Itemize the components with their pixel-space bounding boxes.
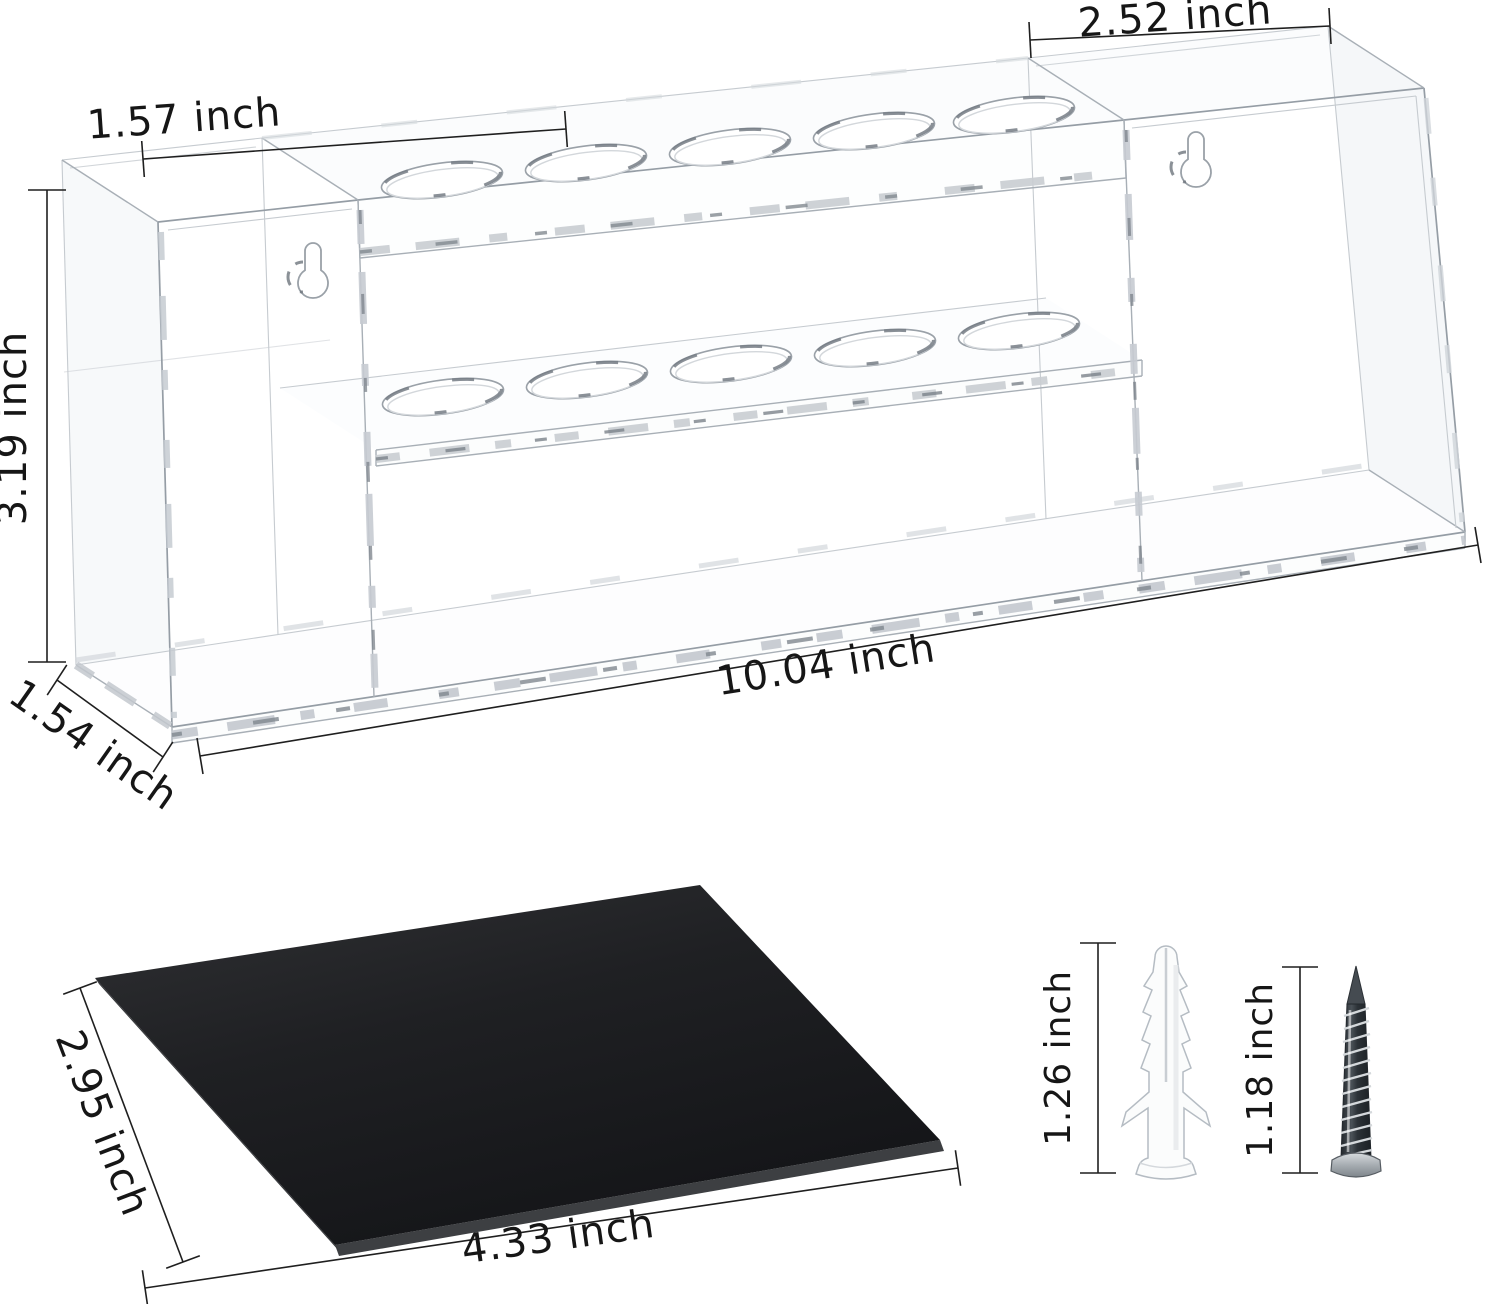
dim-label-anchor-length: 1.26 inch — [1038, 970, 1079, 1146]
black-mat — [95, 885, 940, 1245]
dim-label-mat-depth: 2.95 inch — [46, 1024, 159, 1222]
product-dimension-diagram: 1.57 inch 2.52 inch 3.19 inch 1.54 inch … — [0, 0, 1500, 1304]
wall-anchor — [1122, 946, 1210, 1179]
keyhole-slot-right — [1181, 132, 1211, 187]
dim-label-left-width: 1.57 inch — [85, 89, 282, 148]
mounting-screw — [1331, 966, 1381, 1177]
hardware-dimension-lines — [1080, 943, 1318, 1173]
dim-label-height: 3.19 inch — [0, 331, 36, 526]
diagram-canvas: 1.57 inch 2.52 inch 3.19 inch 1.54 inch … — [0, 0, 1500, 1304]
mounting-hardware-diagram: 1.26 inch 1.18 inch — [1038, 943, 1381, 1179]
keyhole-slot-left — [298, 243, 328, 298]
black-mat-diagram: 2.95 inch 4.33 inch — [46, 885, 961, 1304]
acrylic-rack-wireframe: 1.57 inch 2.52 inch 3.19 inch 1.54 inch … — [0, 0, 1481, 820]
dim-label-screw-length: 1.18 inch — [1240, 982, 1281, 1158]
